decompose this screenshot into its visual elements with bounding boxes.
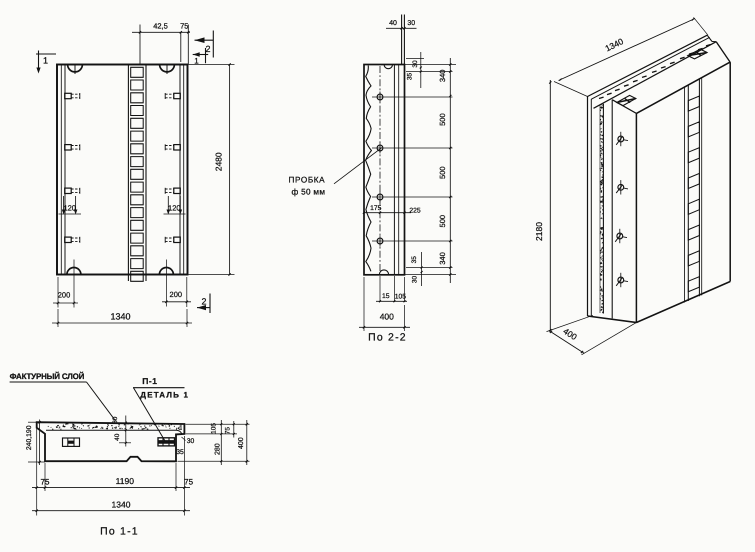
svg-text:15: 15 bbox=[382, 293, 390, 300]
svg-text:105: 105 bbox=[395, 294, 407, 301]
svg-text:175: 175 bbox=[370, 205, 382, 212]
svg-text:По 2-2: По 2-2 bbox=[368, 331, 407, 343]
svg-text:75: 75 bbox=[41, 478, 50, 487]
svg-text:30: 30 bbox=[187, 438, 195, 445]
svg-text:120: 120 bbox=[63, 203, 76, 212]
svg-text:ПРОБКА: ПРОБКА bbox=[289, 176, 326, 185]
svg-text:1190: 1190 bbox=[116, 476, 135, 486]
svg-text:105: 105 bbox=[210, 423, 217, 434]
svg-text:400: 400 bbox=[380, 311, 394, 321]
svg-text:2180: 2180 bbox=[534, 222, 544, 241]
svg-text:По 1-1: По 1-1 bbox=[100, 526, 139, 538]
svg-text:500: 500 bbox=[438, 166, 447, 179]
svg-text:ф 50 мм: ф 50 мм bbox=[292, 187, 326, 196]
svg-text:500: 500 bbox=[438, 113, 447, 126]
svg-text:280: 280 bbox=[214, 443, 221, 455]
svg-text:30: 30 bbox=[407, 20, 415, 27]
svg-text:340: 340 bbox=[438, 70, 447, 83]
svg-text:40: 40 bbox=[114, 433, 121, 441]
svg-text:400: 400 bbox=[238, 437, 245, 449]
svg-text:2: 2 bbox=[205, 44, 210, 54]
svg-text:ДЕТАЛЬ 1: ДЕТАЛЬ 1 bbox=[140, 391, 188, 400]
svg-text:500: 500 bbox=[438, 215, 447, 228]
svg-text:ФАКТУРНЫЙ СЛОЙ: ФАКТУРНЫЙ СЛОЙ bbox=[10, 371, 85, 381]
svg-text:1340: 1340 bbox=[110, 312, 130, 322]
svg-text:40: 40 bbox=[389, 20, 397, 27]
svg-text:35: 35 bbox=[411, 256, 418, 264]
svg-text:2: 2 bbox=[201, 297, 206, 307]
svg-text:340: 340 bbox=[438, 252, 447, 265]
svg-text:75: 75 bbox=[224, 427, 231, 435]
svg-text:75: 75 bbox=[180, 21, 188, 30]
svg-text:1340: 1340 bbox=[112, 500, 131, 510]
svg-text:2480: 2480 bbox=[214, 152, 224, 171]
svg-text:30: 30 bbox=[412, 276, 419, 284]
svg-text:225: 225 bbox=[409, 207, 421, 214]
svg-text:240,190: 240,190 bbox=[26, 425, 33, 450]
svg-text:30: 30 bbox=[412, 60, 419, 68]
svg-text:200: 200 bbox=[58, 291, 71, 300]
svg-text:П-1: П-1 bbox=[142, 376, 157, 386]
svg-text:1: 1 bbox=[43, 56, 48, 66]
svg-text:35: 35 bbox=[176, 449, 184, 456]
svg-text:200: 200 bbox=[170, 290, 183, 299]
svg-text:120: 120 bbox=[168, 203, 181, 212]
svg-text:75: 75 bbox=[184, 478, 193, 487]
svg-text:35: 35 bbox=[406, 73, 413, 81]
svg-text:42,5: 42,5 bbox=[153, 21, 168, 30]
